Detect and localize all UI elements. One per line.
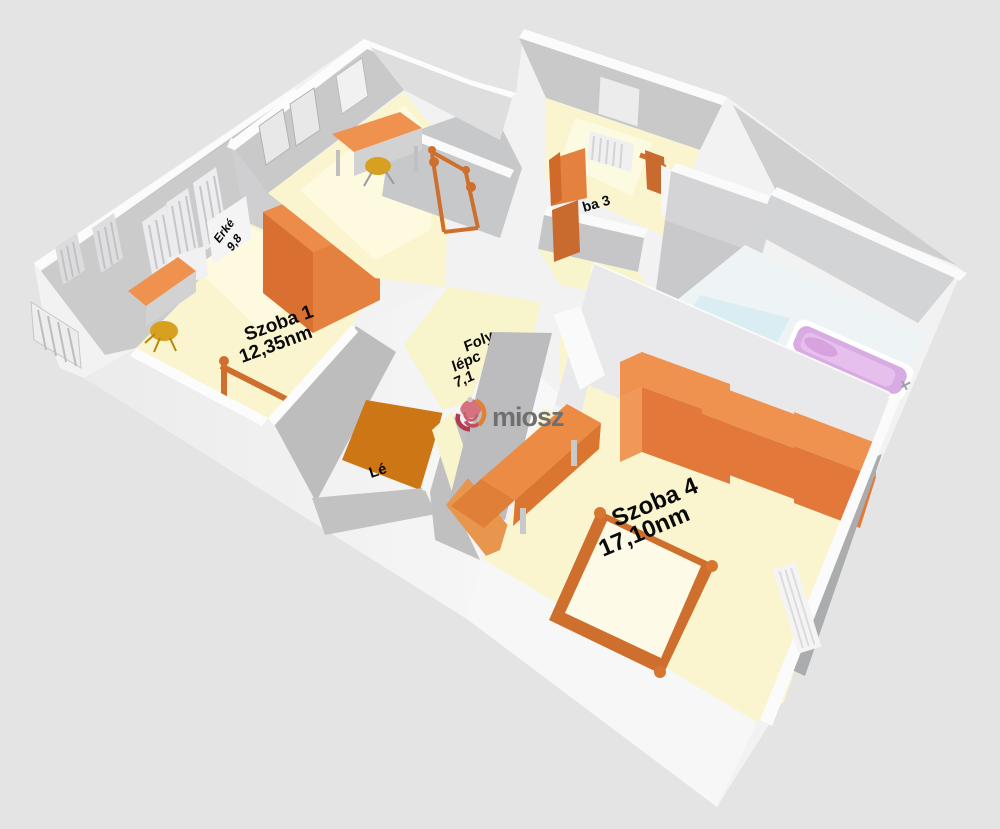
svg-text:miosz: miosz	[492, 402, 564, 432]
